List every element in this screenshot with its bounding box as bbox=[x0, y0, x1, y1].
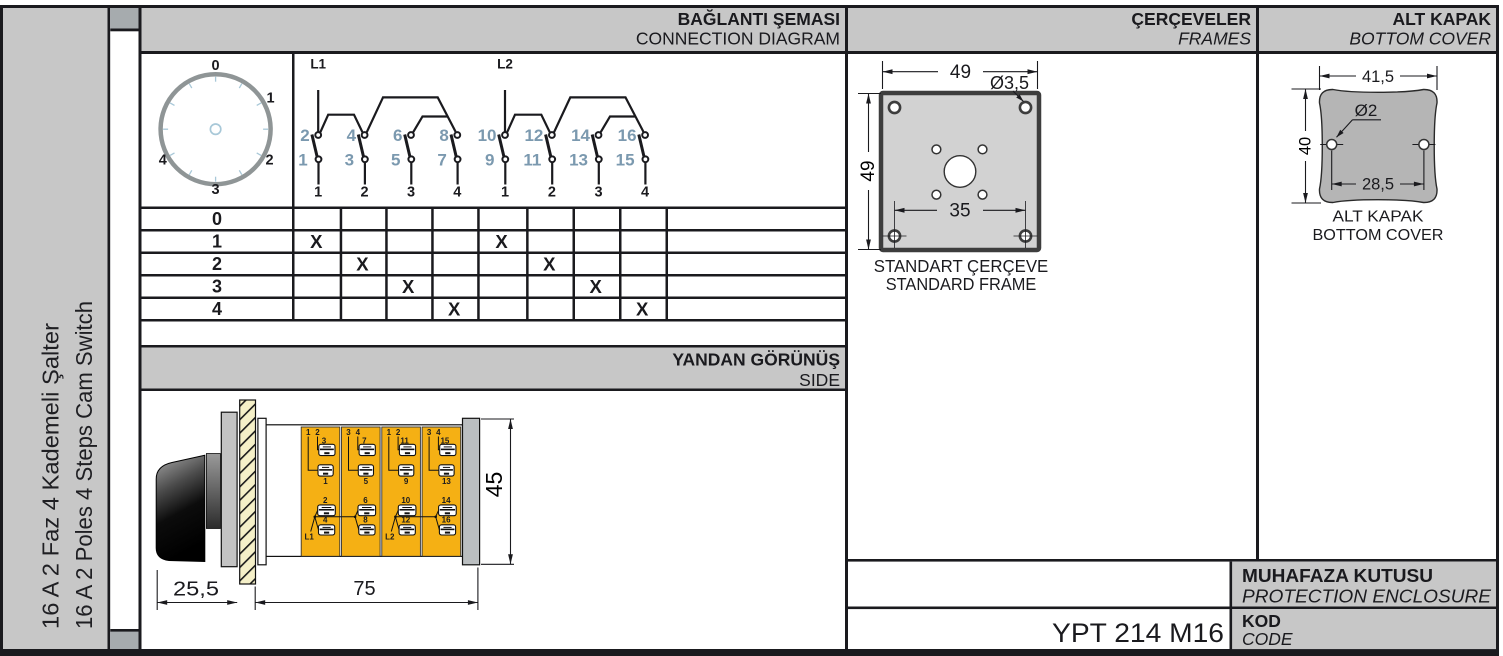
svg-text:MUHAFAZA KUTUSU: MUHAFAZA KUTUSU bbox=[1242, 566, 1433, 586]
svg-text:16 A 2 Poles 4 Steps Cam Switc: 16 A 2 Poles 4 Steps Cam Switch bbox=[71, 301, 97, 629]
svg-text:X: X bbox=[402, 276, 415, 297]
svg-text:15: 15 bbox=[616, 151, 635, 170]
svg-text:35: 35 bbox=[949, 201, 970, 222]
svg-text:13: 13 bbox=[569, 151, 588, 170]
svg-text:KOD: KOD bbox=[1242, 611, 1281, 631]
svg-text:X: X bbox=[356, 253, 369, 274]
svg-text:25,5: 25,5 bbox=[173, 579, 219, 601]
svg-text:1: 1 bbox=[306, 428, 311, 437]
svg-text:X: X bbox=[310, 231, 323, 252]
svg-text:BOTTOM COVER: BOTTOM COVER bbox=[1313, 227, 1444, 244]
svg-text:3: 3 bbox=[407, 185, 415, 201]
svg-text:ALT KAPAK: ALT KAPAK bbox=[1392, 9, 1491, 29]
svg-text:45: 45 bbox=[481, 472, 507, 498]
svg-text:10: 10 bbox=[478, 126, 497, 145]
svg-text:X: X bbox=[448, 298, 461, 319]
svg-text:12: 12 bbox=[524, 126, 543, 145]
svg-text:L2: L2 bbox=[497, 56, 513, 71]
svg-text:10: 10 bbox=[401, 496, 410, 505]
svg-text:16: 16 bbox=[442, 516, 451, 525]
svg-text:16: 16 bbox=[618, 126, 637, 145]
svg-text:STANDARD FRAME: STANDARD FRAME bbox=[886, 274, 1037, 294]
svg-text:X: X bbox=[636, 298, 649, 319]
svg-text:0: 0 bbox=[212, 209, 222, 229]
svg-text:ÇERÇEVELER: ÇERÇEVELER bbox=[1131, 9, 1251, 29]
svg-text:14: 14 bbox=[571, 126, 590, 145]
svg-text:1: 1 bbox=[266, 91, 274, 107]
svg-text:YPT 214 M16: YPT 214 M16 bbox=[1052, 618, 1224, 648]
svg-text:X: X bbox=[543, 253, 556, 274]
svg-text:2: 2 bbox=[361, 185, 369, 201]
svg-text:5: 5 bbox=[364, 477, 369, 486]
svg-text:1: 1 bbox=[314, 185, 322, 201]
svg-text:Ø3,5: Ø3,5 bbox=[990, 73, 1029, 93]
svg-text:1: 1 bbox=[387, 428, 392, 437]
svg-text:3: 3 bbox=[427, 428, 432, 437]
svg-text:2: 2 bbox=[548, 185, 556, 201]
svg-text:28,5: 28,5 bbox=[1362, 176, 1394, 194]
svg-text:4: 4 bbox=[356, 428, 361, 437]
svg-text:X: X bbox=[590, 276, 603, 297]
svg-text:0: 0 bbox=[212, 58, 220, 74]
svg-text:SIDE: SIDE bbox=[799, 370, 840, 390]
svg-text:4: 4 bbox=[159, 153, 167, 169]
svg-text:CONNECTION DIAGRAM: CONNECTION DIAGRAM bbox=[636, 29, 840, 49]
svg-text:2: 2 bbox=[212, 254, 222, 274]
svg-text:Ø2: Ø2 bbox=[1355, 101, 1378, 120]
svg-text:YANDAN GÖRÜNÜŞ: YANDAN GÖRÜNÜŞ bbox=[672, 350, 840, 370]
svg-text:4: 4 bbox=[641, 185, 649, 201]
svg-text:6: 6 bbox=[393, 126, 402, 145]
svg-text:L2: L2 bbox=[385, 533, 395, 542]
svg-text:CODE: CODE bbox=[1242, 629, 1293, 649]
svg-text:7: 7 bbox=[437, 151, 446, 170]
svg-text:X: X bbox=[495, 231, 508, 252]
svg-text:8: 8 bbox=[439, 126, 448, 145]
svg-text:BOTTOM COVER: BOTTOM COVER bbox=[1349, 29, 1491, 49]
svg-text:3: 3 bbox=[345, 151, 354, 170]
svg-text:5: 5 bbox=[391, 151, 400, 170]
svg-text:1: 1 bbox=[298, 151, 307, 170]
svg-text:2: 2 bbox=[300, 126, 309, 145]
svg-text:9: 9 bbox=[485, 151, 494, 170]
svg-text:3: 3 bbox=[212, 182, 220, 198]
svg-text:16 A 2 Faz 4 Kademeli Şalter: 16 A 2 Faz 4 Kademeli Şalter bbox=[38, 323, 64, 629]
svg-text:9: 9 bbox=[404, 477, 409, 486]
svg-text:BAĞLANTI ŞEMASI: BAĞLANTI ŞEMASI bbox=[678, 8, 840, 29]
svg-text:FRAMES: FRAMES bbox=[1178, 29, 1251, 49]
svg-text:49: 49 bbox=[858, 160, 879, 181]
svg-text:13: 13 bbox=[442, 477, 451, 486]
svg-text:PROTECTION ENCLOSURE: PROTECTION ENCLOSURE bbox=[1242, 587, 1492, 607]
svg-text:1: 1 bbox=[501, 185, 509, 201]
svg-text:1: 1 bbox=[323, 477, 328, 486]
svg-text:STANDART ÇERÇEVE: STANDART ÇERÇEVE bbox=[874, 256, 1049, 276]
svg-text:4: 4 bbox=[212, 299, 222, 319]
svg-text:6: 6 bbox=[363, 496, 368, 505]
svg-text:2: 2 bbox=[323, 496, 328, 505]
svg-text:L1: L1 bbox=[310, 56, 326, 71]
svg-text:2: 2 bbox=[315, 428, 320, 437]
svg-text:11: 11 bbox=[523, 151, 541, 170]
svg-text:2: 2 bbox=[266, 153, 274, 169]
svg-text:3: 3 bbox=[212, 277, 222, 297]
svg-text:4: 4 bbox=[453, 185, 461, 201]
svg-text:3: 3 bbox=[346, 428, 351, 437]
svg-text:ALT KAPAK: ALT KAPAK bbox=[1333, 209, 1424, 226]
svg-text:L1: L1 bbox=[305, 533, 315, 542]
svg-text:49: 49 bbox=[950, 62, 971, 83]
svg-text:3: 3 bbox=[594, 185, 602, 201]
svg-text:75: 75 bbox=[353, 578, 375, 600]
svg-text:1: 1 bbox=[212, 232, 222, 252]
svg-text:8: 8 bbox=[363, 516, 368, 525]
svg-text:14: 14 bbox=[442, 496, 451, 505]
svg-text:4: 4 bbox=[347, 126, 357, 145]
svg-text:40: 40 bbox=[1297, 137, 1315, 155]
svg-text:41,5: 41,5 bbox=[1362, 68, 1394, 86]
